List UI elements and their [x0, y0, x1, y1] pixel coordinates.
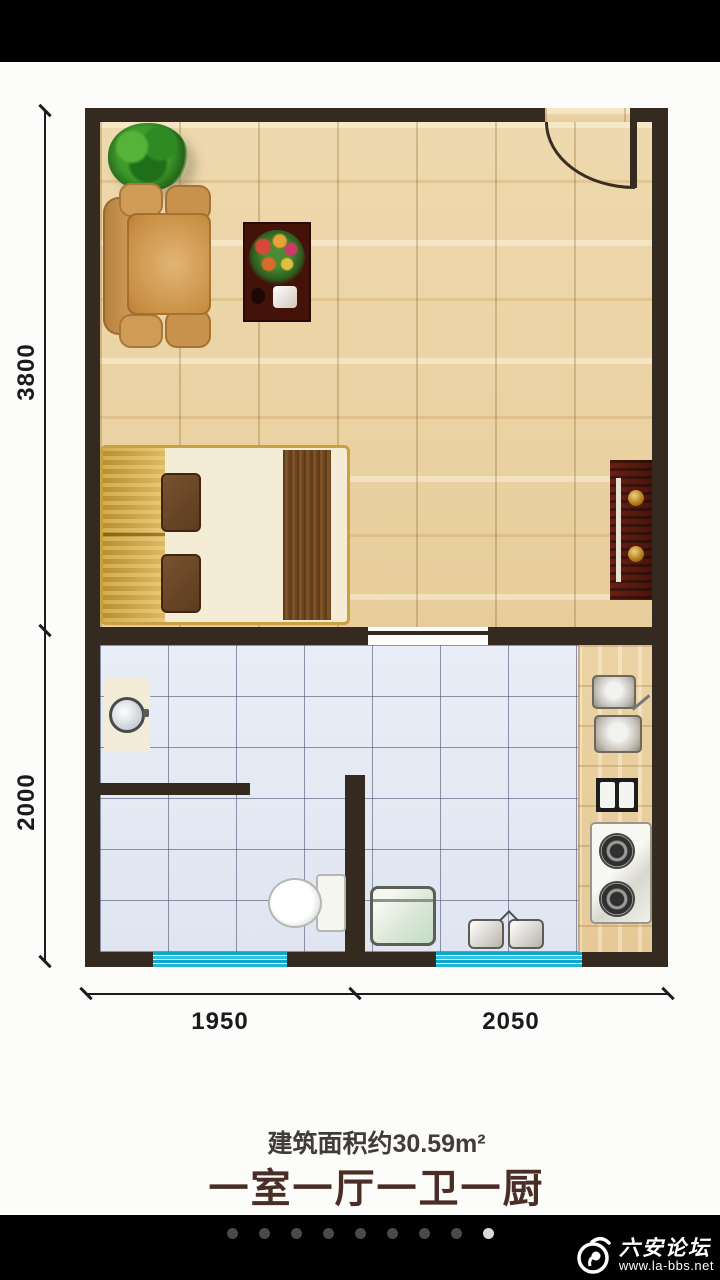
sink-basin [468, 919, 504, 949]
washer-latch [143, 709, 149, 717]
phone-screen: 3800 2000 1950 2050 建筑面积约30.59m² 一室一厅一卫一… [0, 0, 720, 1280]
dimension-label-1950: 1950 [155, 1008, 285, 1036]
washing-machine [104, 678, 150, 752]
bed-runner [283, 450, 331, 620]
pillow [161, 473, 201, 532]
horizontal-dimension-line [85, 993, 668, 995]
right-wall [652, 108, 668, 967]
gas-stove [590, 822, 652, 924]
layout-title: 一室一厅一卫一厨 [85, 1156, 668, 1214]
bottom-wall-segment-1 [85, 952, 153, 967]
sofa-cushion [165, 310, 211, 348]
pillow [161, 554, 201, 613]
washer-drum [109, 697, 145, 733]
cabinet-knob [628, 546, 644, 562]
page-dot-7[interactable] [419, 1228, 430, 1239]
sofa-cushion [119, 314, 163, 348]
page-dot-3[interactable] [291, 1228, 302, 1239]
toilet [268, 872, 346, 934]
watermark: 六安论坛 www.la-bbs.net [573, 1234, 714, 1276]
bathroom-window [153, 952, 287, 967]
top-wall-left-segment [85, 108, 545, 122]
potted-plant [108, 123, 188, 191]
teacup [273, 286, 297, 308]
page-dot-5[interactable] [355, 1228, 366, 1239]
stove-burner [599, 881, 635, 917]
coffee-table [243, 222, 311, 322]
dimension-label-3800: 3800 [13, 332, 41, 412]
shower-tray [370, 886, 436, 946]
bottom-wall-segment-2 [287, 952, 436, 967]
cabinet-knob [628, 490, 644, 506]
stove-burner [599, 833, 635, 869]
sofa [103, 183, 215, 348]
floorplan-photo[interactable]: 3800 2000 1950 2050 建筑面积约30.59m² 一室一厅一卫一… [0, 62, 720, 1215]
floorplan-drawing [85, 108, 668, 967]
cutting-board [600, 782, 615, 808]
page-dot-4[interactable] [323, 1228, 334, 1239]
page-dot-6[interactable] [387, 1228, 398, 1239]
forum-logo-icon [573, 1234, 615, 1276]
bathroom-stub-wall [100, 783, 250, 795]
cabinet-slit [616, 478, 621, 582]
page-dot-9[interactable] [483, 1228, 494, 1239]
dimension-label-2050: 2050 [446, 1008, 576, 1036]
cutting-board [619, 782, 634, 808]
sofa-seat [127, 213, 211, 315]
kitchen-sink [592, 675, 648, 753]
watermark-site-url: www.la-bbs.net [619, 1259, 714, 1272]
viewer-bottom-bar: 六安论坛 www.la-bbs.net [0, 1215, 720, 1280]
page-dot-8[interactable] [451, 1228, 462, 1239]
sliding-door-line [358, 631, 518, 635]
dimension-label-2000: 2000 [13, 762, 41, 842]
building-area-label: 建筑面积约30.59m² [85, 1124, 668, 1160]
flower-arrangement [249, 230, 305, 285]
divider-wall-right [488, 627, 668, 645]
watermark-site-name: 六安论坛 [619, 1239, 714, 1259]
shower-tray-edge [373, 899, 433, 902]
bed-headboard-split [103, 533, 165, 536]
vanity-double-sink [468, 913, 546, 951]
table-decor [251, 288, 265, 304]
divider-wall-left [85, 627, 368, 645]
page-dot-2[interactable] [259, 1228, 270, 1239]
vertical-dimension-line [44, 110, 46, 963]
entry-opening [545, 108, 630, 122]
sink-basin [592, 675, 636, 709]
toilet-bowl [268, 878, 322, 928]
page-dot-1[interactable] [227, 1228, 238, 1239]
sink-basin [594, 715, 642, 753]
sofa-cushion [119, 183, 163, 217]
cutting-board-set [596, 778, 638, 812]
bed [100, 445, 350, 625]
kitchen-window [436, 952, 582, 967]
cabinet [610, 460, 652, 600]
bathroom-divider-wall [345, 775, 365, 952]
left-wall [85, 108, 100, 967]
bottom-wall-segment-3 [582, 952, 668, 967]
